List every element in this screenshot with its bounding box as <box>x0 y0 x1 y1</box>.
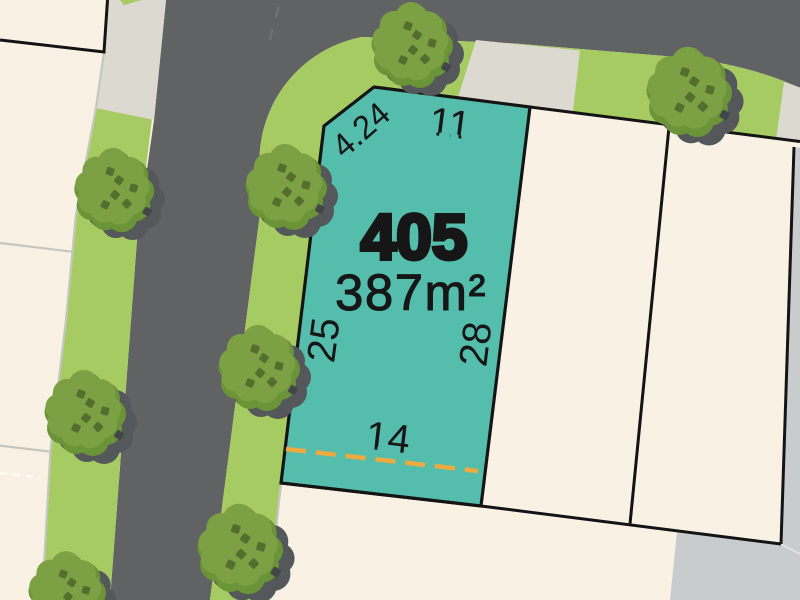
svg-text:11: 11 <box>426 100 473 149</box>
svg-text:25: 25 <box>299 315 348 365</box>
svg-text:28: 28 <box>451 319 500 369</box>
svg-text:14: 14 <box>363 414 412 463</box>
svg-text:387m²: 387m² <box>335 264 487 321</box>
svg-text:405: 405 <box>361 201 468 273</box>
